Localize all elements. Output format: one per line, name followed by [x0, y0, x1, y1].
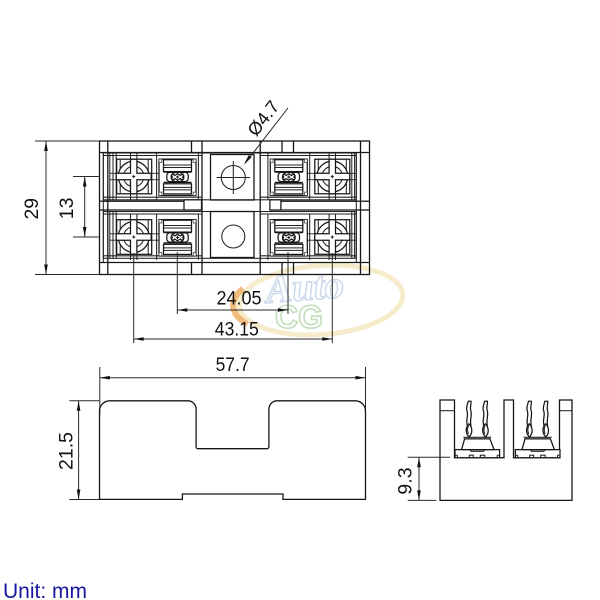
svg-text:57.7: 57.7 — [216, 354, 250, 376]
svg-text:13: 13 — [56, 198, 78, 220]
svg-text:43.15: 43.15 — [215, 318, 259, 340]
svg-text:24.05: 24.05 — [217, 288, 262, 310]
svg-text:29: 29 — [21, 198, 43, 220]
svg-text:21.5: 21.5 — [56, 432, 78, 470]
svg-text:9.3: 9.3 — [395, 467, 417, 494]
svg-text:Unit: mm: Unit: mm — [3, 580, 87, 600]
svg-text:CG: CG — [275, 299, 323, 335]
svg-text:Ø4.7: Ø4.7 — [243, 97, 283, 140]
